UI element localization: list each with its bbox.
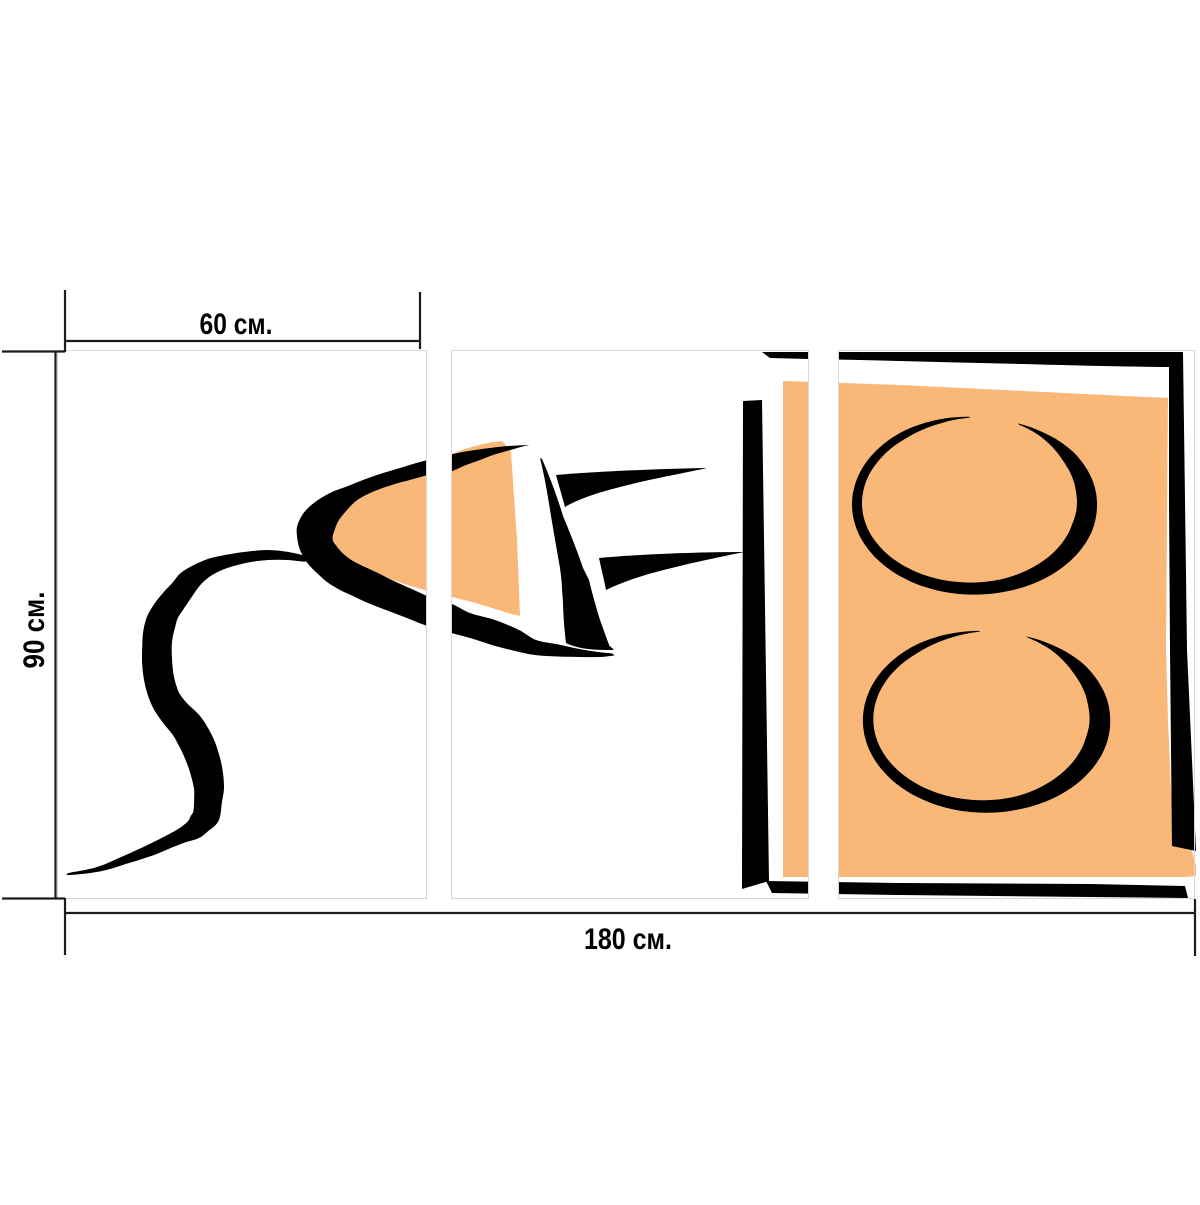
svg-text:90 см.: 90 см. bbox=[18, 592, 51, 669]
svg-text:180 см.: 180 см. bbox=[584, 923, 672, 956]
svg-text:60 см.: 60 см. bbox=[200, 308, 273, 341]
